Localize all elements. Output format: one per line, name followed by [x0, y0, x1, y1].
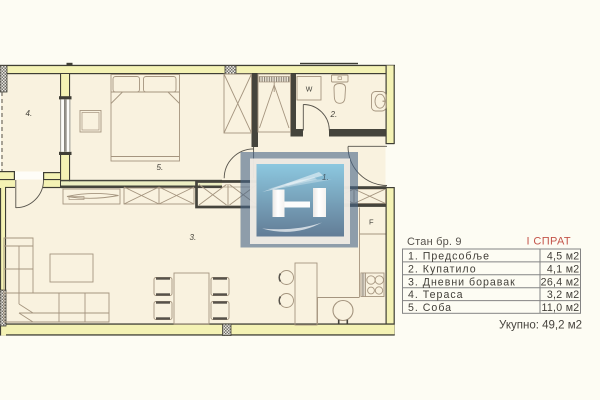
svg-text:2. Купатило: 2. Купатило	[408, 263, 477, 275]
svg-text:11,0 м2: 11,0 м2	[541, 302, 579, 314]
svg-text:5. Соба: 5. Соба	[408, 302, 452, 314]
svg-text:3. Дневни боравак: 3. Дневни боравак	[408, 276, 516, 288]
svg-text:2.: 2.	[330, 110, 338, 119]
svg-text:I СПРАТ: I СПРАТ	[526, 236, 571, 248]
svg-text:Стан бр. 9: Стан бр. 9	[407, 236, 462, 248]
svg-text:4,5 м2: 4,5 м2	[547, 251, 580, 263]
svg-text:4. Тераса: 4. Тераса	[408, 289, 464, 301]
svg-text:26,4 м2: 26,4 м2	[541, 276, 580, 288]
svg-text:1.: 1.	[322, 173, 329, 182]
svg-text:3.: 3.	[190, 233, 197, 242]
svg-text:W: W	[306, 87, 313, 94]
svg-text:4,1 м2: 4,1 м2	[547, 263, 580, 275]
svg-text:F: F	[369, 218, 374, 227]
svg-text:1. Предсобље: 1. Предсобље	[408, 251, 490, 263]
svg-text:Укупно: 49,2 м2: Укупно: 49,2 м2	[499, 320, 582, 332]
svg-text:5.: 5.	[157, 163, 164, 172]
svg-text:4.: 4.	[26, 109, 33, 118]
svg-text:3,2 м2: 3,2 м2	[547, 289, 580, 301]
